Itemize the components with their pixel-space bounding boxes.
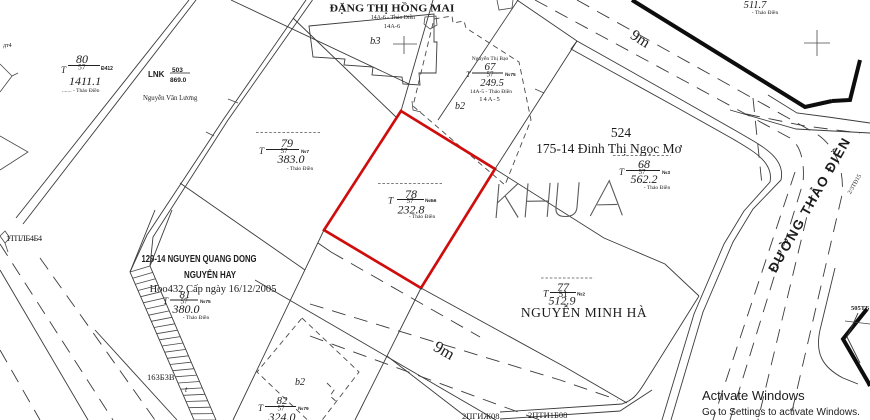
svg-text:505ТБ: 505ТБ	[851, 305, 869, 312]
svg-text:№79: №79	[298, 406, 309, 412]
svg-text:b2: b2	[455, 101, 465, 112]
svg-text:дт4: дт4	[3, 43, 12, 49]
svg-text:175-14 Đinh Thị Ngọc Mơ: 175-14 Đinh Thị Ngọc Mơ	[536, 141, 682, 156]
svg-text:b3: b3	[370, 36, 381, 47]
svg-text:Go to Settings to activate Win: Go to Settings to activate Windows.	[702, 407, 860, 418]
svg-text:№3: №3	[662, 170, 670, 176]
svg-text:T: T	[388, 197, 394, 207]
svg-text:14A-6 - Thảo Điền: 14A-6 - Thảo Điền	[371, 14, 415, 21]
svg-text:- Thảo Điền: - Thảo Điền	[644, 184, 671, 191]
svg-text:Nguyễn Văn Lương: Nguyễn Văn Lương	[143, 95, 198, 102]
svg-text:№75: №75	[200, 299, 211, 305]
svg-text:1411.1: 1411.1	[69, 74, 101, 88]
svg-text:14A-6: 14A-6	[384, 23, 401, 30]
svg-text:....... - Thảo Điền: ....... - Thảo Điền	[62, 87, 100, 94]
svg-text:1TПЛБ4Б4: 1TПЛБ4Б4	[6, 233, 43, 243]
svg-text:b2: b2	[295, 377, 305, 388]
svg-text:562.2: 562.2	[631, 172, 658, 186]
svg-text:- Thảo Điền: - Thảo Điền	[183, 314, 210, 321]
svg-text:- Thảo Điền: - Thảo Điền	[287, 165, 314, 172]
svg-text:14A-5: 14A-5	[479, 96, 501, 103]
svg-text:Hoo432 Cấp ngày 16/12/2005: Hoo432 Cấp ngày 16/12/2005	[150, 284, 277, 295]
svg-text:ĐẶNG THỊ HỒNG MAI: ĐẶNG THỊ HỒNG MAI	[330, 2, 455, 15]
svg-text:524: 524	[611, 125, 632, 140]
svg-text:324.0: 324.0	[268, 410, 296, 420]
svg-text:129-14 NGUYEN QUANG DONG: 129-14 NGUYEN QUANG DONG	[142, 254, 257, 265]
svg-text:NGUYỄN MINH HÀ: NGUYỄN MINH HÀ	[521, 305, 647, 320]
svg-text:Activate Windows: Activate Windows	[702, 388, 805, 403]
svg-text:869.0: 869.0	[170, 77, 187, 84]
svg-text:249.5: 249.5	[480, 78, 504, 89]
svg-text:NGUYỂN HAY: NGUYỂN HAY	[184, 268, 236, 281]
svg-text:№Б6: №Б6	[425, 198, 437, 204]
svg-text:№2: №2	[577, 292, 585, 298]
svg-text:№75: №75	[505, 72, 516, 78]
svg-text:380.0: 380.0	[172, 302, 200, 316]
svg-text:- Thảo Điền: - Thảo Điền	[409, 213, 436, 220]
svg-text:14A-5 - Thảo Điền: 14A-5 - Thảo Điền	[470, 88, 512, 95]
svg-text:2ПГИЖ08: 2ПГИЖ08	[462, 411, 500, 420]
svg-text:- Thảo Điền: - Thảo Điền	[752, 9, 779, 16]
svg-text:LNK: LNK	[148, 70, 165, 79]
svg-text:163Б3B: 163Б3B	[147, 372, 175, 382]
svg-text:57: 57	[78, 63, 86, 72]
svg-text:Đ412: Đ412	[101, 66, 113, 72]
svg-text:383.0: 383.0	[277, 152, 305, 166]
svg-text:2ПТИ1Б08: 2ПТИ1Б08	[528, 410, 567, 420]
